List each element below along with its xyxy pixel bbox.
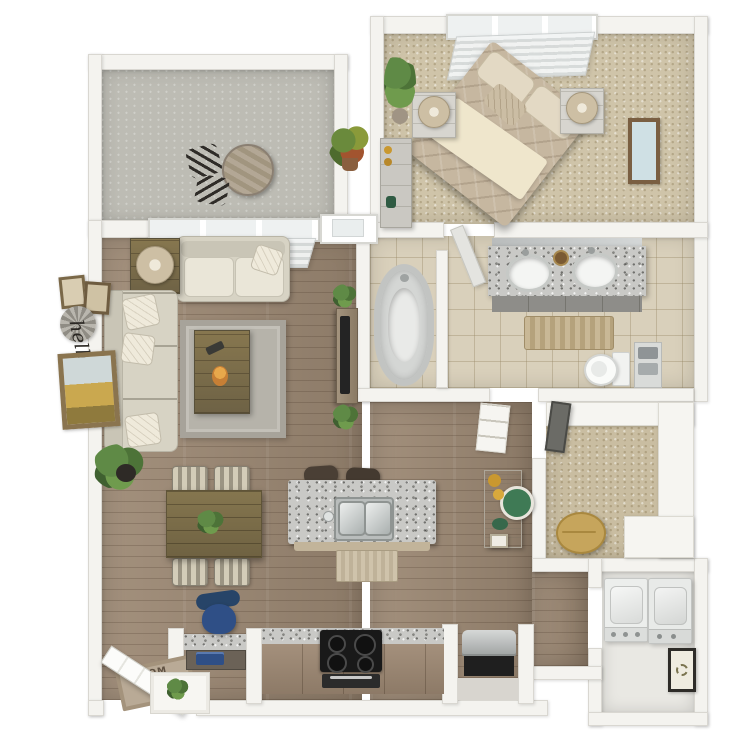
dining-chair-4 xyxy=(214,558,250,586)
kitchen-partition-2 xyxy=(518,624,534,704)
bottom-wall-stub xyxy=(88,700,104,716)
sectional-pillow-3 xyxy=(124,412,162,448)
island-floor-mat xyxy=(336,550,398,582)
entry-plant xyxy=(166,678,190,700)
sink-basin-left xyxy=(338,501,366,536)
bathtub-basin xyxy=(388,288,420,362)
alcove-floor xyxy=(458,678,518,700)
vanity-soap-decor xyxy=(553,250,569,266)
toilet-bowl xyxy=(584,354,618,386)
closet-pouf-seam xyxy=(562,531,596,533)
console-frame-1 xyxy=(490,534,508,548)
oven-front xyxy=(322,674,380,688)
console-gold-decor-1 xyxy=(488,474,501,487)
dresser-candle-2 xyxy=(384,158,392,166)
toilet-seat xyxy=(591,361,607,377)
sink-basin-right xyxy=(364,501,392,536)
tv-plant-bottom xyxy=(332,404,360,430)
stove-burner-3 xyxy=(327,653,347,673)
corner-table-lamp xyxy=(136,246,174,284)
nightstand-lamp-2 xyxy=(566,92,598,124)
console-green-bowl xyxy=(492,518,508,530)
dining-chair-3 xyxy=(172,558,208,586)
vanity-mirror-strip xyxy=(492,238,642,246)
bathtub xyxy=(374,264,434,386)
wall-frame-large xyxy=(57,350,120,430)
dryer-lid xyxy=(654,587,687,625)
closet-left-wall xyxy=(532,458,546,572)
bedroom-plant xyxy=(384,52,416,112)
wreath-icon xyxy=(676,664,688,676)
loveseat xyxy=(176,236,290,302)
dresser-candle-1 xyxy=(384,146,392,154)
right-outer-wall-lower xyxy=(694,558,708,726)
dryer xyxy=(648,578,692,644)
tub-alcove-wall xyxy=(436,250,448,388)
washer-knob-3 xyxy=(635,632,640,637)
laundry-hall-floor xyxy=(532,572,588,666)
office-chair-seat xyxy=(202,604,236,634)
stove-burner-4 xyxy=(357,656,374,673)
bistro-table xyxy=(222,144,274,196)
balcony-left-wall xyxy=(88,54,102,236)
floor-plan: hello HOM Su xyxy=(0,0,750,750)
decor-vase xyxy=(212,366,228,386)
nook-right-partition xyxy=(246,628,262,704)
sectional-pillow-2 xyxy=(120,332,156,366)
loveseat-cushion-1 xyxy=(184,257,234,297)
console-platter xyxy=(500,486,534,520)
closet-bottom-wall xyxy=(532,558,708,572)
dryer-controls xyxy=(649,629,691,643)
vanity-sink-right xyxy=(572,252,618,290)
closet-shelf-step xyxy=(624,516,694,558)
towel-stack-2 xyxy=(638,363,658,375)
patio-door-glass xyxy=(332,219,364,237)
towel-stack-1 xyxy=(638,347,658,359)
nightstand-lamp-1 xyxy=(418,96,450,128)
hall-shelf xyxy=(476,403,511,454)
dryer-knob-2 xyxy=(671,634,676,639)
balcony-top-wall xyxy=(88,54,348,70)
dining-centerpiece xyxy=(196,510,226,534)
console-gold-decor-2 xyxy=(493,489,504,500)
hall-bottom-wall xyxy=(532,666,602,680)
towel-shelf xyxy=(634,342,662,388)
kitchen-partition-1 xyxy=(442,624,458,704)
bath-bottom-wall-left xyxy=(356,388,490,402)
vanity-sink-left xyxy=(506,254,552,292)
bathtub-faucet xyxy=(400,274,409,282)
croton-pot xyxy=(342,158,358,171)
steel-appliance xyxy=(462,630,516,678)
stove xyxy=(318,628,384,690)
washer-knob-1 xyxy=(611,632,616,637)
dresser-decor xyxy=(386,196,396,208)
laptop xyxy=(196,652,224,665)
stove-burner-1 xyxy=(328,635,346,653)
laundry-left-wall-top xyxy=(588,558,602,588)
bath-rug xyxy=(524,316,614,350)
bedroom-wall-frame xyxy=(628,118,660,184)
steel-appliance-body xyxy=(464,654,514,676)
nook-backsplash xyxy=(184,634,246,650)
closet-pouf xyxy=(556,512,606,554)
stove-cooktop xyxy=(320,630,382,672)
vanity-faucet-right xyxy=(588,247,595,254)
bedroom-plant-pot xyxy=(392,108,408,124)
bath-bottom-wall-right xyxy=(538,388,694,402)
island-faucet xyxy=(323,511,334,522)
washer-controls xyxy=(605,627,647,641)
bed-bath-wall-right xyxy=(494,222,708,238)
bistro-chair-2 xyxy=(194,173,230,206)
dryer-knob-1 xyxy=(657,634,662,639)
laundry-wreath-frame xyxy=(668,648,696,692)
washer-lid xyxy=(610,586,643,624)
washer-knob-2 xyxy=(623,632,628,637)
steel-appliance-lid xyxy=(462,630,516,656)
washer xyxy=(604,578,648,642)
vanity-faucet-left xyxy=(522,249,529,256)
oven-handle xyxy=(330,676,372,679)
bath-left-wall xyxy=(356,222,370,402)
right-outer-wall-upper xyxy=(694,16,708,402)
stove-burner-2 xyxy=(354,634,376,656)
laundry-bottom-wall xyxy=(588,712,708,726)
tv-plant-top xyxy=(332,284,358,308)
living-plant-pot xyxy=(116,464,136,482)
vanity-cabinet xyxy=(492,296,642,312)
tv-screen xyxy=(340,316,350,394)
